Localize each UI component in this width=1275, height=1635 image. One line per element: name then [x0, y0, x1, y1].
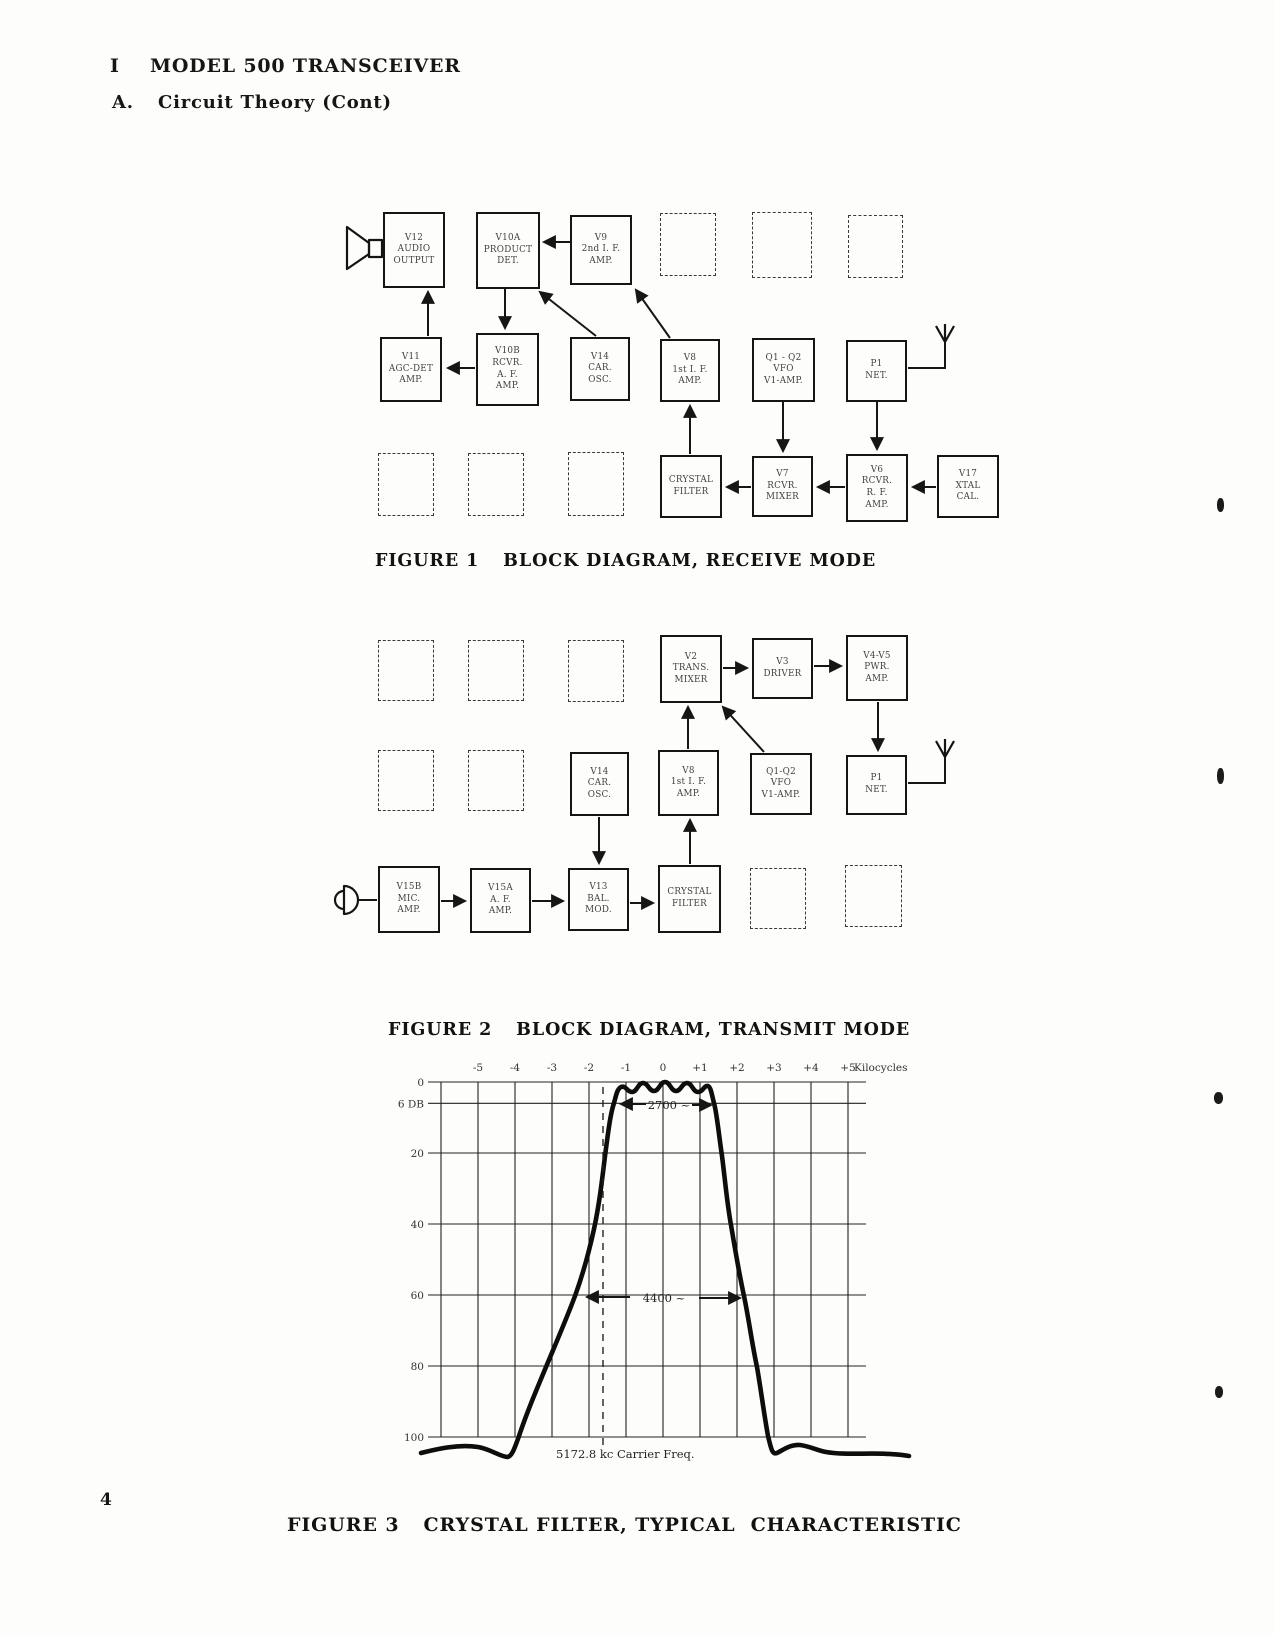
figure2-block-v14: V14CAR.OSC.: [570, 752, 629, 816]
figure1-block-v10b: V10BRCVR.A. F.AMP.: [476, 333, 539, 406]
figure1-block-v12: V12AUDIOOUTPUT: [383, 212, 445, 288]
page-number: 4: [100, 1490, 112, 1510]
figure2-block-q1q2: Q1-Q2VFOV1-AMP.: [750, 753, 812, 815]
figure1-block-v7: V7RCVR.MIXER: [752, 456, 813, 517]
figure3-caption-label: FIGURE 3: [287, 1514, 399, 1536]
figure2-block-p1: P1NET.: [846, 755, 907, 815]
figure1-dashed-block: [752, 212, 812, 278]
figure2-block-v2: V2TRANS.MIXER: [660, 635, 722, 703]
figure2-block-v15b: V15BMIC.AMP.: [378, 866, 440, 933]
figure1-dashed-block: [378, 453, 434, 516]
figure2-caption-label: FIGURE 2: [388, 1020, 492, 1040]
figure1-block-v6: V6RCVR.R. F.AMP.: [846, 454, 908, 522]
scan-artifact: [1215, 1386, 1223, 1398]
figure2-dashed-block: [378, 640, 434, 701]
figure1-dashed-block: [568, 452, 624, 516]
figure2-block-v15a: V15AA. F.AMP.: [470, 868, 531, 933]
figure1-block-xf: CRYSTALFILTER: [660, 455, 722, 518]
figure1-block-p1: P1NET.: [846, 340, 907, 402]
figure2-block-v8: V81st I. F.AMP.: [658, 750, 719, 816]
scan-artifact: [1217, 768, 1224, 784]
figure1-dashed-block: [468, 453, 524, 516]
scan-artifact: [1214, 1092, 1223, 1104]
figure1-dashed-block: [848, 215, 903, 278]
figure1-caption-label: FIGURE 1: [375, 551, 479, 571]
figure2-block-v3: V3DRIVER: [752, 638, 813, 699]
figure1-caption: FIGURE 1BLOCK DIAGRAM, RECEIVE MODE: [375, 551, 876, 571]
document-page: IMODEL 500 TRANSCEIVER A.Circuit Theory …: [0, 0, 1275, 1635]
figure2-dashed-block: [378, 750, 434, 811]
figure2-dashed-block: [750, 868, 806, 929]
figure1-block-v11: V11AGC-DETAMP.: [380, 337, 442, 402]
figure2-block-xf: CRYSTALFILTER: [658, 865, 721, 933]
figure1-block-q1q2: Q1 - Q2VFOV1-AMP.: [752, 338, 815, 402]
figure1-block-v17: V17XTALCAL.: [937, 455, 999, 518]
figure3-caption: FIGURE 3CRYSTAL FILTER, TYPICAL CHARACTE…: [287, 1514, 962, 1536]
figure2-caption-text: BLOCK DIAGRAM, TRANSMIT MODE: [516, 1020, 910, 1040]
figure1-block-v14: V14CAR.OSC.: [570, 337, 630, 401]
figure2-block-v13: V13BAL.MOD.: [568, 868, 629, 931]
scan-artifact: [1217, 498, 1224, 512]
figure1-caption-text: BLOCK DIAGRAM, RECEIVE MODE: [503, 551, 876, 571]
block-layer: V12AUDIOOUTPUTV10APRODUCTDET.V92nd I. F.…: [0, 0, 1275, 1635]
figure2-dashed-block: [468, 750, 524, 811]
figure3-caption-text: CRYSTAL FILTER, TYPICAL CHARACTERISTIC: [423, 1514, 961, 1536]
figure2-dashed-block: [845, 865, 902, 927]
figure1-block-v8: V81st I. F.AMP.: [660, 339, 720, 402]
figure1-dashed-block: [660, 213, 716, 276]
figure2-dashed-block: [568, 640, 624, 702]
figure1-block-v10a: V10APRODUCTDET.: [476, 212, 540, 289]
figure2-caption: FIGURE 2BLOCK DIAGRAM, TRANSMIT MODE: [388, 1020, 910, 1040]
figure2-block-v4v5: V4-V5PWR.AMP.: [846, 635, 908, 701]
figure1-block-v9: V92nd I. F.AMP.: [570, 215, 632, 285]
figure2-dashed-block: [468, 640, 524, 701]
